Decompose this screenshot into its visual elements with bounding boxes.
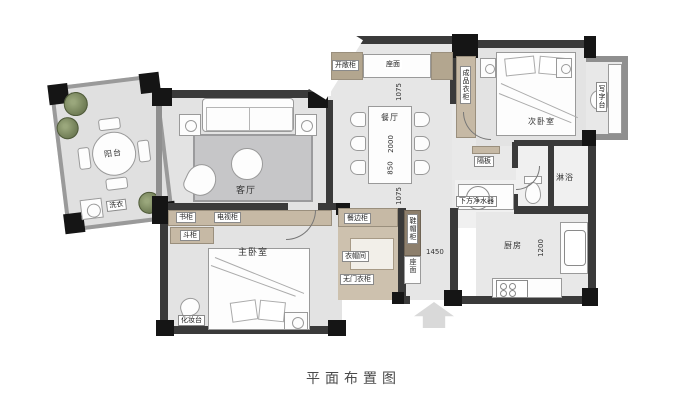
pillar — [156, 320, 174, 336]
dining-chair — [350, 160, 366, 175]
dining-chair — [414, 160, 430, 175]
dining-chair — [350, 136, 366, 151]
nightstand — [480, 58, 496, 78]
kitchen-sink-icon — [564, 230, 586, 266]
pillow — [230, 299, 259, 322]
side-table — [179, 114, 201, 136]
balcony-chair — [137, 139, 152, 162]
coffee-table — [231, 148, 263, 180]
shoe-hat-cabinet-label: 鞋帽柜 — [407, 214, 418, 244]
east-outer-wall — [588, 146, 596, 304]
laundry-label: 洗衣 — [106, 199, 127, 212]
master-bedroom-label: 主卧室 — [238, 245, 268, 258]
pillar — [152, 88, 172, 106]
pillar — [584, 36, 596, 58]
desk — [608, 64, 622, 134]
dining-chair — [350, 112, 366, 127]
sofa — [202, 98, 294, 132]
balcony-chair — [105, 176, 128, 191]
living-room-label: 客厅 — [236, 183, 256, 196]
entry-bench-top-label: 座面 — [408, 258, 418, 274]
doorless-wardrobe-label: 无门衣柜 — [340, 274, 374, 285]
bench-top-label: 座面 — [384, 60, 402, 69]
dressing-table-label: 化妆台 — [178, 315, 205, 326]
sideboard-label: 餐边柜 — [344, 213, 371, 224]
living-master-divider — [164, 203, 288, 210]
chest-label: 斗柜 — [180, 230, 200, 241]
bookcase-label: 书柜 — [176, 212, 196, 223]
dining-side-cabinet — [431, 52, 453, 80]
plant-icon — [62, 91, 89, 118]
balcony-chair — [98, 117, 121, 132]
dining-chair — [414, 136, 430, 151]
stove-icon — [496, 280, 528, 298]
dining-label: 餐厅 — [381, 112, 399, 123]
dim-dining-bottom: 1075 — [395, 187, 403, 205]
tv-cabinet-label: 电视柜 — [214, 212, 241, 223]
pillar — [392, 292, 404, 304]
living-dining-divider — [326, 100, 333, 208]
bath-divider-wall — [548, 146, 554, 210]
bath-left-wall-a — [512, 142, 518, 168]
dim-table-width: 850 — [387, 161, 395, 174]
living-top-wall — [166, 90, 326, 98]
bath-bottom-wall — [514, 206, 592, 214]
shelf-board-label: 隔板 — [474, 156, 494, 167]
open-cabinet-label: 开敞柜 — [332, 60, 359, 71]
pillar — [452, 34, 478, 58]
balcony-label: 阳台 — [103, 147, 122, 160]
hall-kitchen-wall — [450, 208, 458, 298]
dim-dining-top: 1075 — [395, 83, 403, 101]
ready-wardrobe-label: 成品衣柜 — [460, 66, 471, 104]
pillar — [582, 130, 596, 146]
water-purifier-label: 下方净水器 — [456, 196, 497, 207]
kitchen-label: 厨房 — [504, 240, 522, 251]
shower-label: 淋浴 — [556, 172, 574, 183]
dining-chair — [414, 112, 430, 127]
pillar — [444, 290, 462, 306]
balcony-living-wall — [156, 98, 162, 200]
plan-title: 平面布置图 — [306, 368, 401, 388]
study-desk-label: 写字台 — [596, 82, 607, 112]
plant-icon — [55, 116, 80, 141]
nightstand — [284, 312, 308, 330]
washing-machine-icon — [80, 198, 104, 221]
dim-table-length: 2000 — [387, 135, 395, 153]
cloakroom-label: 衣帽间 — [342, 251, 369, 262]
study-nook-right-wall — [622, 56, 628, 140]
pillar — [328, 320, 346, 336]
second-bedroom-top-wall — [470, 40, 590, 48]
pillow — [504, 55, 536, 76]
floor-plan: 阳台 洗衣 客厅 — [0, 0, 690, 414]
master-left-wall — [160, 224, 168, 332]
pillar — [152, 196, 168, 224]
pillow — [258, 300, 286, 323]
dim-kitchen: 1200 — [537, 239, 545, 257]
balcony-chair — [77, 147, 92, 170]
nightstand — [556, 58, 572, 78]
shelf-board — [472, 146, 500, 154]
second-bedroom-label: 次卧室 — [528, 116, 555, 127]
pillar — [582, 288, 598, 306]
dim-entry-hall: 1450 — [426, 248, 444, 256]
side-table — [295, 114, 317, 136]
